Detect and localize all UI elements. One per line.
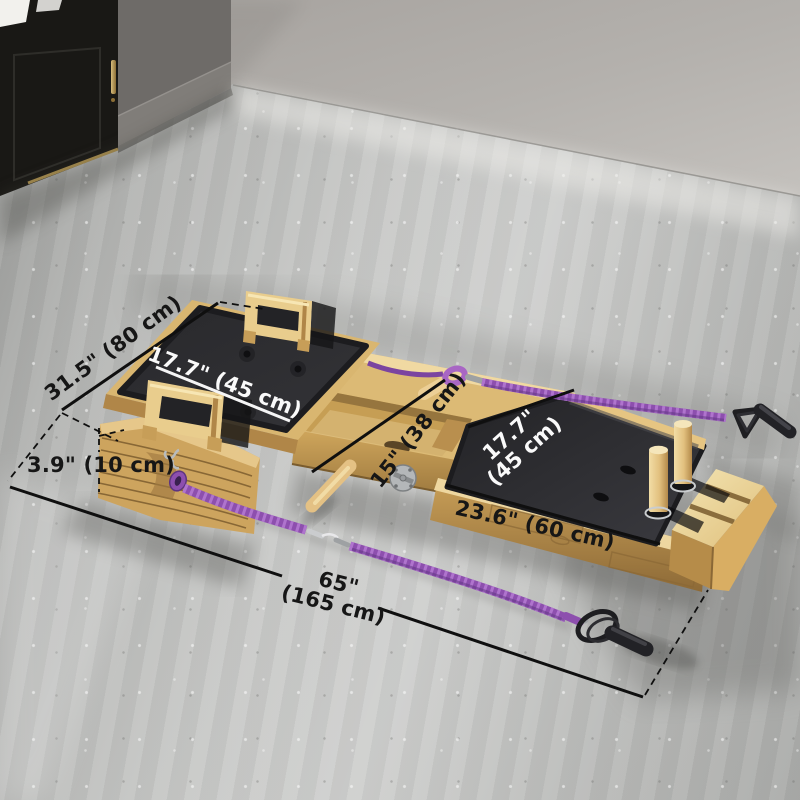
room-background bbox=[0, 0, 800, 244]
carabiner-clip bbox=[468, 377, 482, 381]
door-handle-screw bbox=[111, 98, 115, 102]
product-photo-scene: 31.5" (80 cm) 17.7" (45 cm) 3.9" (10 cm)… bbox=[0, 0, 800, 800]
cord-loop bbox=[322, 534, 338, 538]
door-handle bbox=[111, 60, 116, 94]
foot-peg bbox=[649, 450, 668, 512]
dimension-label-base-height: 3.9" (10 cm) bbox=[27, 454, 175, 476]
photo-illustration bbox=[0, 0, 800, 800]
shoulder-block-shadow bbox=[310, 301, 336, 349]
foot-peg bbox=[674, 424, 692, 484]
peg-top bbox=[674, 420, 692, 428]
peg-top bbox=[649, 446, 668, 454]
